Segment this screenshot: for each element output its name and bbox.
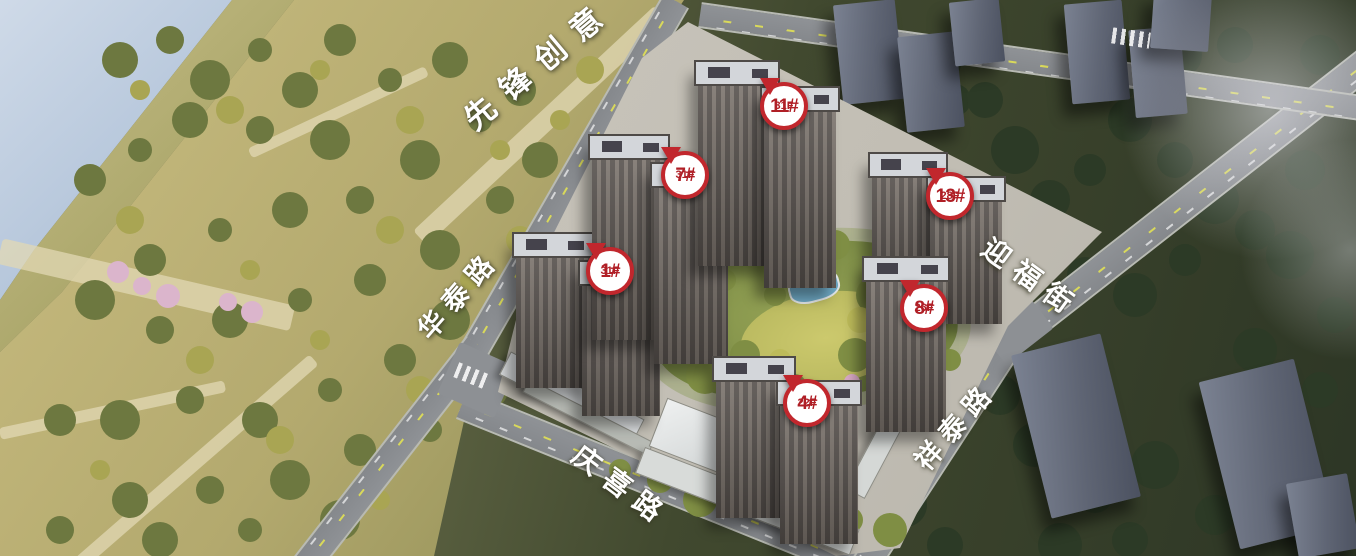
- pin-tail: [783, 375, 803, 392]
- context-building: [1064, 0, 1130, 104]
- context-building: [833, 0, 905, 105]
- atmospheric-haze: [1240, 140, 1356, 360]
- pin-floor-count: 31F: [676, 170, 695, 181]
- pin-floor-count: 31F: [601, 266, 620, 277]
- pin-tail: [661, 147, 681, 164]
- context-building: [1286, 473, 1356, 556]
- pin-tail: [760, 78, 780, 95]
- pin-floor-count: 31F: [775, 101, 794, 112]
- pin-tail: [926, 168, 946, 185]
- tower-roof: [862, 256, 950, 282]
- pin-floor-count: 26F: [915, 303, 934, 314]
- pin-floor-count: 22F: [798, 398, 817, 409]
- aerial-masterplan-view: 先锋创意 华泰路 迎福街 祥泰路 庆喜路 1# 31F 4# 22F 7# 31…: [0, 0, 1356, 556]
- context-building: [1150, 0, 1212, 52]
- context-building: [1011, 333, 1141, 518]
- pin-tail: [586, 243, 606, 260]
- tower-roof: [588, 134, 670, 160]
- tower-roof: [512, 232, 596, 258]
- pin-floor-count: 28F: [941, 191, 960, 202]
- pin-tail: [900, 280, 920, 297]
- context-building: [949, 0, 1005, 66]
